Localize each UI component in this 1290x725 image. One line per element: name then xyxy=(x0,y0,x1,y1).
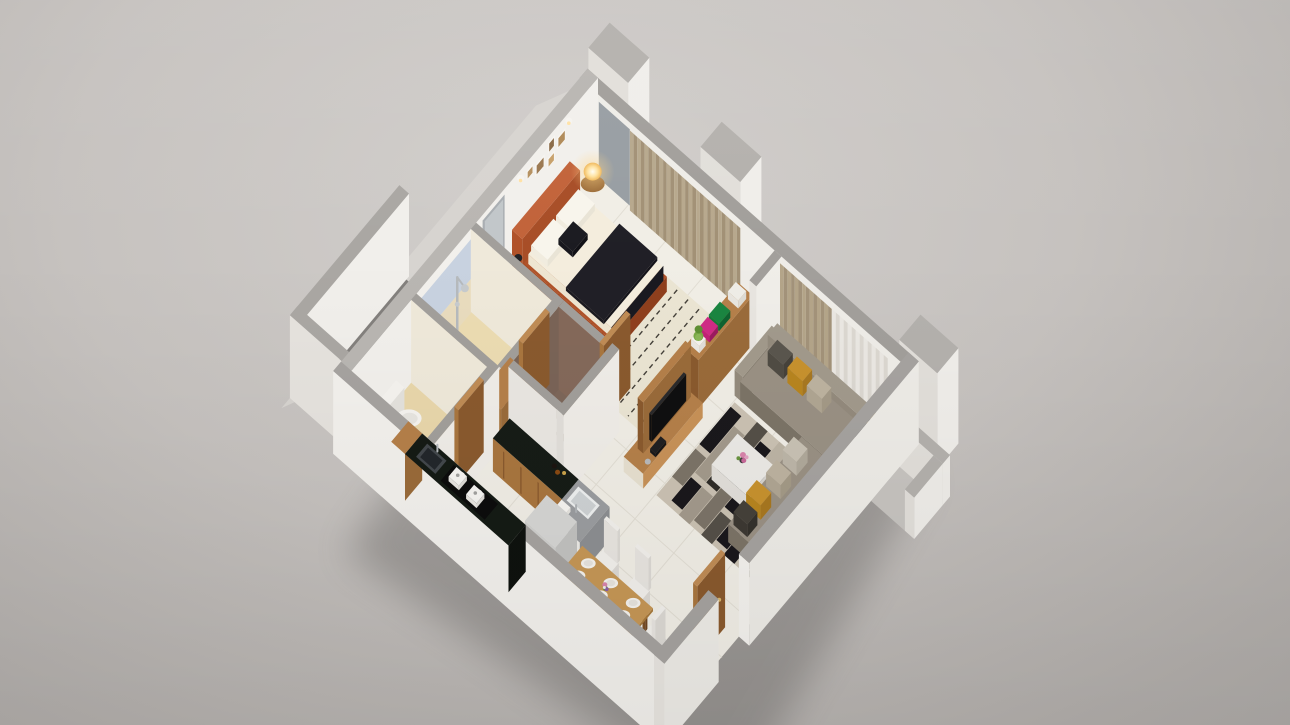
bedroom-curtain xyxy=(682,176,686,259)
bedroom-curtain xyxy=(641,140,645,223)
bedroom-curtain xyxy=(645,144,649,227)
dinner-plate-center xyxy=(629,600,638,606)
south-east-wall xyxy=(739,554,749,646)
coffee-table-flowers xyxy=(736,456,740,460)
bedroom-curtain xyxy=(707,199,711,282)
ac-ledge-wall xyxy=(905,489,914,539)
dinner-plate-center xyxy=(606,580,615,586)
shower-head xyxy=(461,284,469,292)
bedroom-curtain xyxy=(711,202,715,285)
bedroom-curtain xyxy=(670,166,674,249)
bedroom-curtain xyxy=(678,173,682,256)
bedroom-curtain xyxy=(656,153,660,236)
bedroom-curtain xyxy=(652,150,656,233)
bedroom-curtain xyxy=(637,137,641,220)
ac-ledge-wall xyxy=(943,455,950,505)
coffee-table-flowers xyxy=(745,455,749,459)
bedroom-curtain xyxy=(630,131,634,214)
bedroom-curtain xyxy=(704,196,708,279)
bedroom-curtain xyxy=(696,189,700,272)
bedroom-curtain xyxy=(674,170,678,253)
bedroom-curtain xyxy=(634,134,638,217)
dinner-plate-center xyxy=(584,560,593,566)
condiment-bottles xyxy=(555,470,560,475)
wall-sconces xyxy=(567,121,571,125)
pot-knobs xyxy=(473,491,477,495)
bedroom-curtain xyxy=(726,215,730,298)
bedroom-curtain xyxy=(689,183,693,266)
bedroom-curtain xyxy=(718,209,722,292)
television xyxy=(649,413,651,442)
bedside-glow-lamp xyxy=(584,163,602,181)
plant-leaves xyxy=(695,334,702,341)
floorplan-render xyxy=(0,0,1290,725)
dining-chair-back xyxy=(617,528,620,564)
floorplan-canvas xyxy=(0,0,1290,725)
tv-back-panel xyxy=(638,398,644,454)
wall-sconces xyxy=(519,179,523,183)
bedroom-curtain xyxy=(667,163,671,246)
shower-head xyxy=(455,302,460,307)
dining-centerpiece xyxy=(603,586,606,589)
bedroom-curtain xyxy=(659,157,663,240)
condiment-bottles xyxy=(552,464,557,469)
dining-chair-back xyxy=(648,556,651,592)
bedroom-curtain xyxy=(663,160,667,243)
bedroom-curtain xyxy=(715,205,719,288)
bedroom-curtain xyxy=(722,212,726,295)
bedroom-curtain xyxy=(685,179,689,262)
south-east-wall-entry-stub xyxy=(654,655,664,725)
plant-leaves xyxy=(695,325,703,333)
cabinet-door-seam xyxy=(503,451,504,479)
pot-knobs xyxy=(456,473,460,477)
bedroom-curtain xyxy=(648,147,652,230)
bedroom-curtain xyxy=(693,186,697,269)
console-figurine xyxy=(645,459,651,465)
bedroom-curtain xyxy=(700,192,704,275)
condiment-bottles xyxy=(562,471,566,475)
cabinet-door-seam xyxy=(520,467,521,495)
